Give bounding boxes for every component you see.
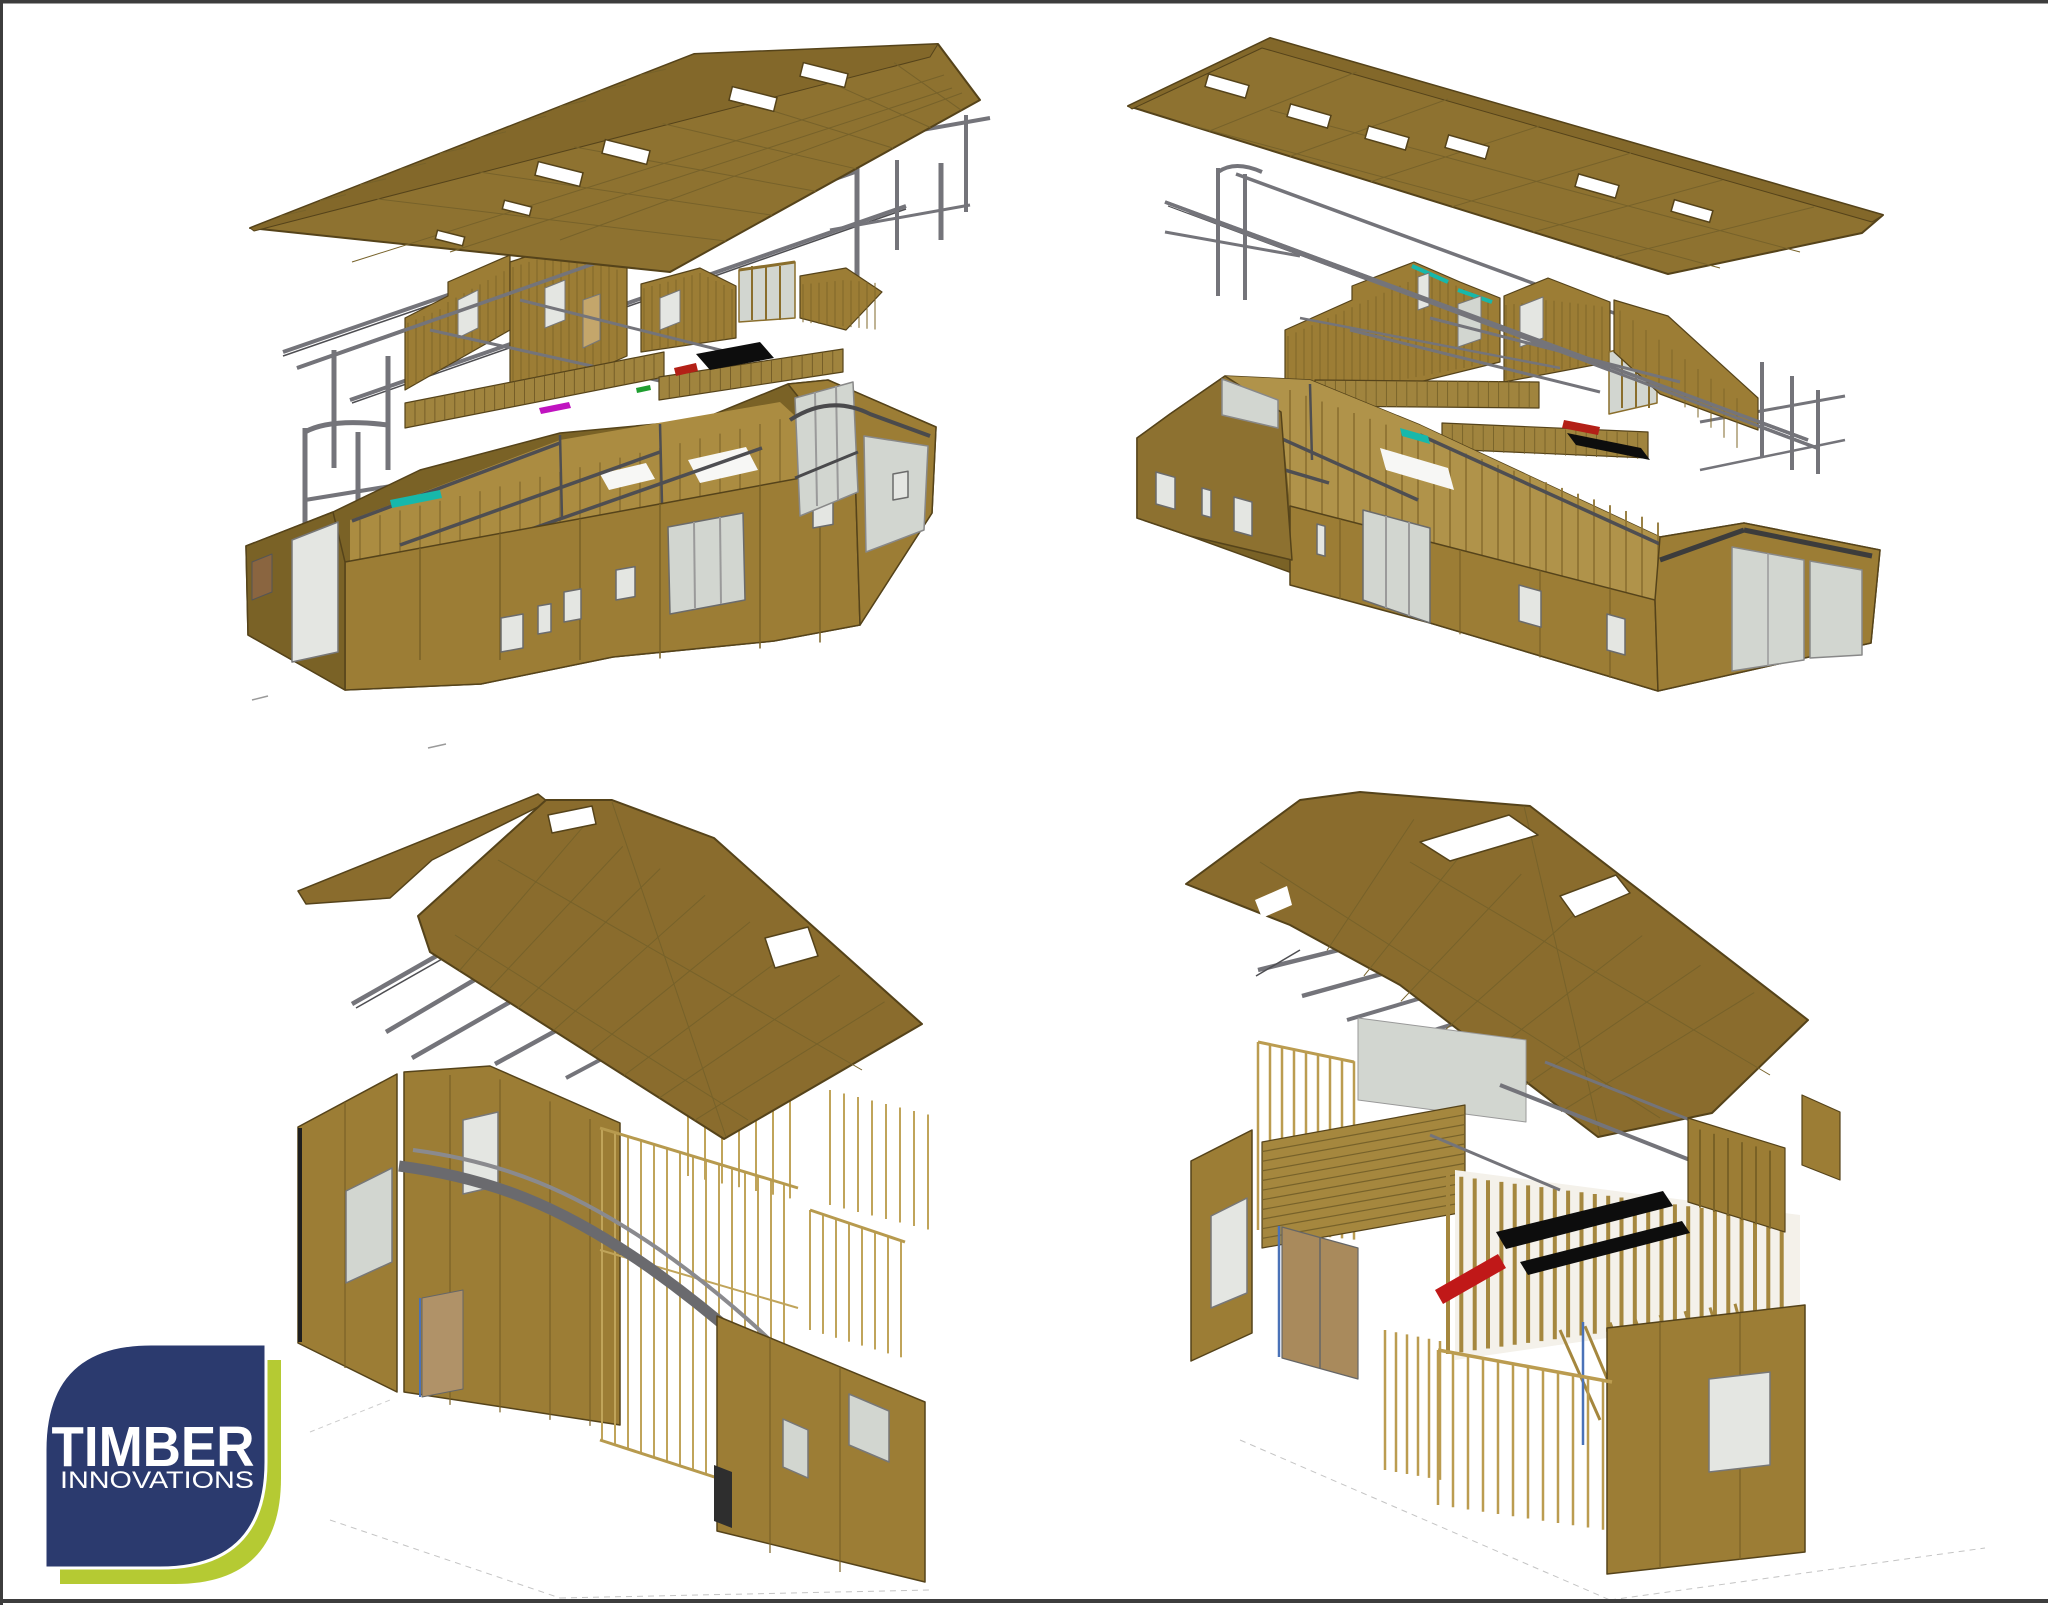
svg-text:INNOVATIONS: INNOVATIONS	[60, 1467, 254, 1494]
